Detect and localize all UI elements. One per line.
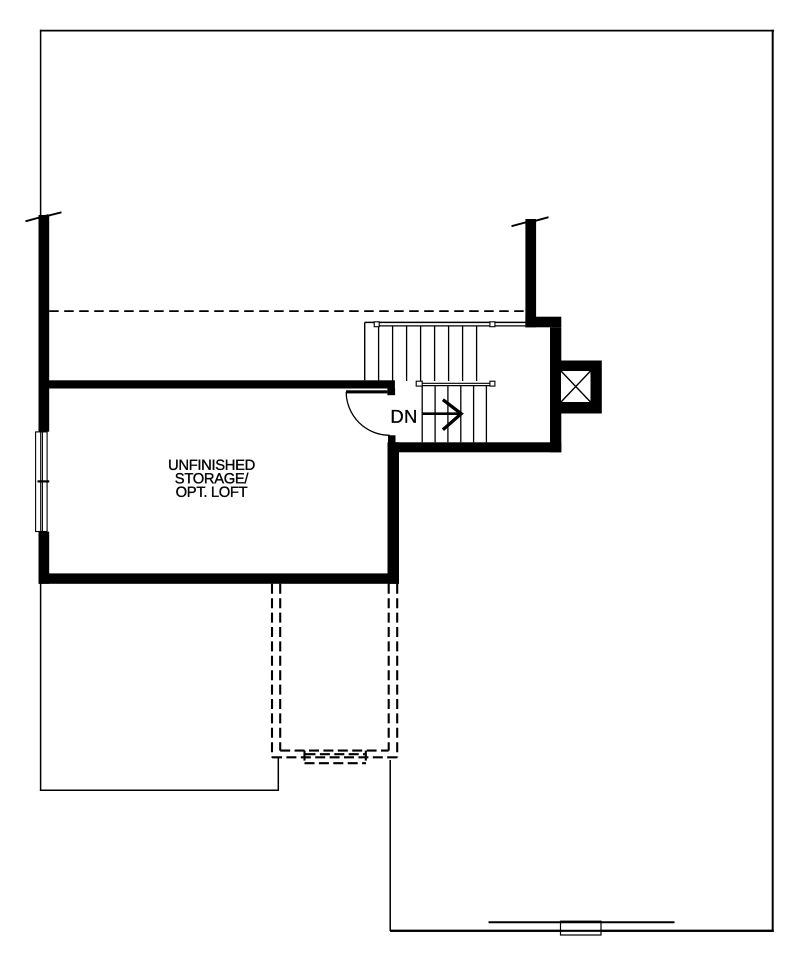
svg-text:OPT. LOFT: OPT. LOFT [176,485,248,501]
svg-text:DN: DN [390,406,417,427]
